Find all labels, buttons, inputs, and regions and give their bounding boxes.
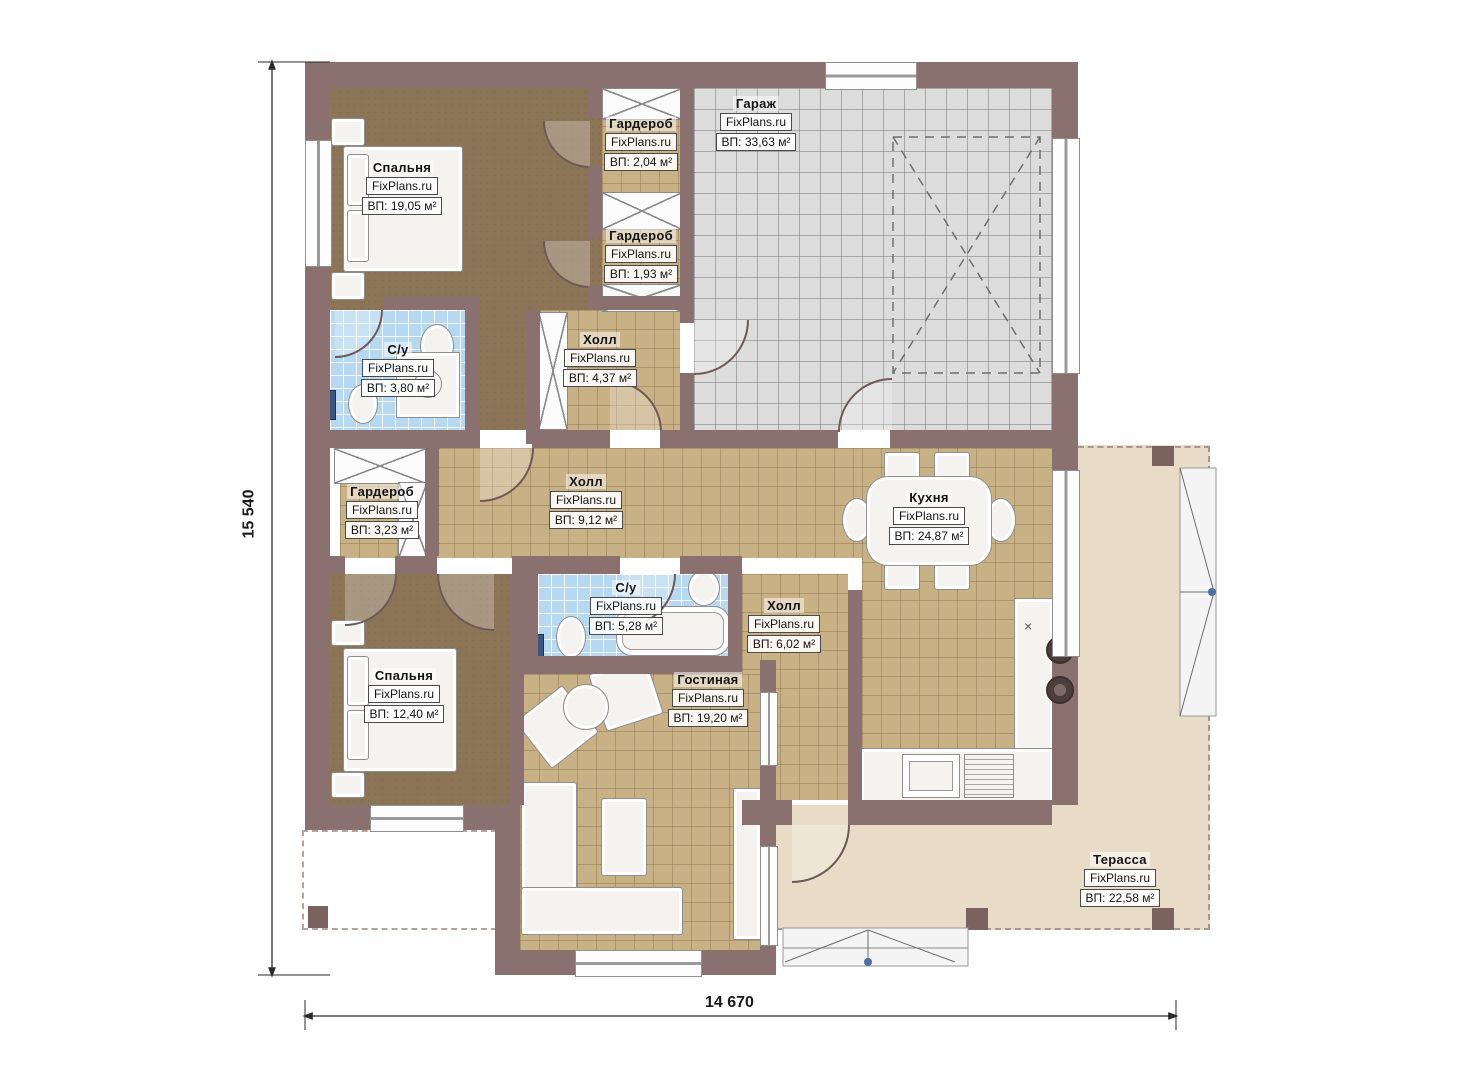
room-area: ВП: 1,93 м² [604,265,678,283]
nightstand [331,118,365,146]
oven-knob [1046,676,1074,704]
brand: FixPlans.ru [720,113,792,131]
room-label-wardrobe-2: Гардероб FixPlans.ru ВП: 1,93 м² [598,228,684,283]
room-area: ВП: 4,37 м² [563,369,637,387]
wardrobe-shelf [602,192,682,230]
brand: FixPlans.ru [346,501,418,519]
wall [1052,445,1078,470]
room-label-bedroom-1: Спальня FixPlans.ru ВП: 19,05 м² [350,160,454,215]
room-area: ВП: 3,80 м² [361,379,435,397]
steps-bottom [783,928,968,966]
wall [495,950,575,975]
wall [395,556,437,574]
room-name: Гостиная [674,672,741,687]
window [575,950,702,977]
brand: FixPlans.ru [590,597,662,615]
room-area: ВП: 19,20 м² [668,709,749,727]
room-name: Холл [566,474,606,489]
window [760,846,778,946]
brand: FixPlans.ru [672,689,744,707]
wall [760,944,776,975]
room-label-hall-main: Холл FixPlans.ru ВП: 9,12 м² [536,474,636,529]
wall [383,296,480,310]
room-area: ВП: 12,40 м² [364,705,445,723]
garage-door [1052,138,1080,374]
terrace-edge [1078,446,1210,448]
wall [305,62,330,140]
brand: FixPlans.ru [605,245,677,263]
room-label-garage: Гараж FixPlans.ru ВП: 33,63 м² [704,96,808,151]
room-area: ВП: 33,63 м² [716,133,797,151]
nightstand [331,772,365,798]
wall [588,88,602,118]
room-name: Терасса [1090,852,1150,867]
terrace-edge [1208,446,1210,930]
wall [465,310,480,444]
room-label-living-room: Гостиная FixPlans.ru ВП: 19,20 м² [656,672,760,727]
pillar [1152,446,1174,466]
pillar [1152,908,1174,930]
brand: FixPlans.ru [605,133,677,151]
window [1052,470,1080,657]
coffee-table [601,798,647,876]
terrace-edge [776,928,1210,930]
kitchen-sink [902,754,960,798]
room-name: Кухня [906,490,952,505]
room-name: Холл [764,598,804,613]
wardrobe-shelf [334,448,426,484]
brand: FixPlans.ru [368,685,440,703]
room-label-bedroom-2: Спальня FixPlans.ru ВП: 12,40 м² [352,668,456,723]
brand: FixPlans.ru [748,615,820,633]
room-area: ВП: 19,05 м² [362,197,443,215]
round-table [563,684,609,730]
room-name: С/у [612,580,639,595]
sofa [521,887,683,935]
pillar [966,908,988,930]
wall [890,430,1052,448]
room-label-hall-entry: Холл FixPlans.ru ВП: 6,02 м² [736,598,832,653]
wall [305,430,480,448]
room-name: Спальня [372,668,436,683]
wall [848,800,1052,825]
room-label-wardrobe-1: Гардероб FixPlans.ru ВП: 2,04 м² [598,116,684,171]
pillow [347,210,369,262]
room-name: Гардероб [347,484,417,499]
window [825,62,917,90]
room-area: ВП: 22,58 м² [1080,889,1161,907]
brand: FixPlans.ru [1084,869,1156,887]
sink-icon: × [1024,618,1032,634]
window [370,805,464,832]
wall [512,556,620,574]
room-name: С/у [384,342,411,357]
room-name: Спальня [370,160,434,175]
wall [760,660,776,692]
room-label-hall-small: Холл FixPlans.ru ВП: 4,37 м² [552,332,648,387]
room-area: ВП: 3,23 м² [345,521,419,539]
room-label-terrace: Терасса FixPlans.ru ВП: 22,58 м² [1060,852,1180,907]
wall [1052,62,1078,138]
room-name: Холл [580,332,620,347]
room-label-bathroom-2: С/у FixPlans.ru ВП: 5,28 м² [576,580,676,635]
porch-outline [302,830,497,930]
wall [848,590,862,802]
pillar [308,906,328,928]
room-label-kitchen: Кухня FixPlans.ru ВП: 24,87 м² [878,490,980,545]
wall [526,310,540,444]
wall [532,430,610,448]
wall [524,574,538,656]
wall [1052,372,1078,445]
dimension-width: 14 670 [705,994,754,1012]
room-label-wardrobe-3: Гардероб FixPlans.ru ВП: 3,23 м² [336,484,428,539]
floor-plan: × [0,0,1474,1080]
brand: FixPlans.ru [550,491,622,509]
wall [510,574,524,805]
brand: FixPlans.ru [366,177,438,195]
room-label-bathroom-1: С/у FixPlans.ru ВП: 3,80 м² [350,342,446,397]
wall [305,265,330,830]
wall [305,805,370,830]
room-area: ВП: 24,87 м² [889,527,970,545]
sink [688,570,720,606]
brand: FixPlans.ru [362,359,434,377]
dimension-height: 15 540 [240,490,258,539]
room-area: ВП: 9,12 м² [549,511,623,529]
room-area: ВП: 6,02 м² [747,635,821,653]
room-area: ВП: 5,28 м² [589,617,663,635]
wall [742,800,792,825]
wall [330,556,345,574]
dishwasher [964,754,1014,798]
room-name: Гардероб [606,116,676,131]
brand: FixPlans.ru [564,349,636,367]
brand: FixPlans.ru [893,507,965,525]
room-name: Гардероб [606,228,676,243]
wall [680,556,742,574]
nightstand [331,272,365,300]
wall [660,430,838,448]
wall [305,62,825,88]
room-area: ВП: 2,04 м² [604,153,678,171]
wall [588,296,694,310]
window [760,692,778,766]
window [305,140,332,267]
room-name: Гараж [733,96,779,111]
